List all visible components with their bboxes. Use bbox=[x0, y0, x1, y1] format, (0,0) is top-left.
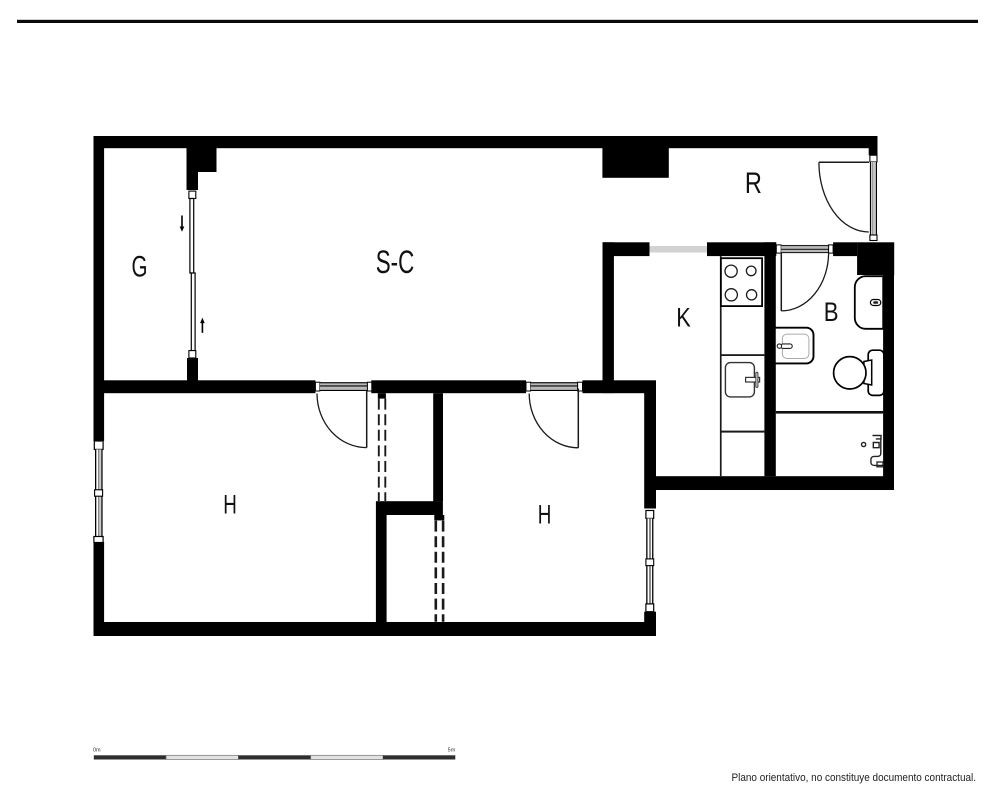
svg-text:K: K bbox=[676, 302, 691, 332]
svg-text:5m: 5m bbox=[448, 748, 456, 754]
svg-text:G: G bbox=[132, 251, 148, 284]
svg-text:0m: 0m bbox=[93, 748, 101, 754]
svg-text:Plano orientativo, no constitu: Plano orientativo, no constituye documen… bbox=[732, 772, 977, 784]
svg-text:B: B bbox=[824, 297, 839, 327]
svg-text:H: H bbox=[538, 499, 552, 529]
svg-text:S-C: S-C bbox=[376, 244, 415, 280]
svg-text:R: R bbox=[745, 167, 762, 200]
svg-text:H: H bbox=[223, 489, 237, 519]
